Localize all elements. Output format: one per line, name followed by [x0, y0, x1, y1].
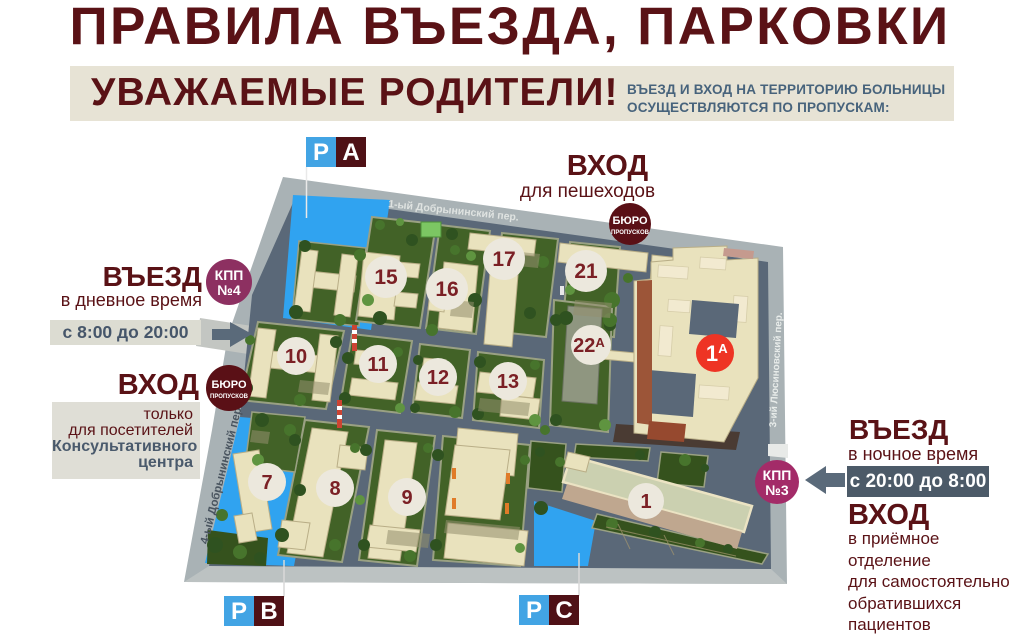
- svg-text:16: 16: [435, 278, 458, 301]
- svg-text:13: 13: [497, 371, 519, 393]
- svg-text:КПП: КПП: [215, 267, 244, 283]
- svg-text:ПРОПУСКОВ: ПРОПУСКОВ: [210, 394, 249, 400]
- svg-text:1: 1: [640, 491, 651, 513]
- svg-text:10: 10: [285, 346, 307, 368]
- svg-text:БЮРО: БЮРО: [613, 215, 648, 227]
- svg-text:С: С: [555, 597, 572, 624]
- svg-text:P: P: [526, 597, 542, 624]
- svg-text:А: А: [718, 341, 728, 356]
- svg-text:12: 12: [427, 367, 449, 389]
- svg-text:P: P: [313, 139, 329, 166]
- svg-text:В: В: [260, 598, 277, 625]
- svg-text:7: 7: [261, 472, 272, 494]
- svg-text:17: 17: [492, 248, 515, 271]
- svg-text:№3: №3: [765, 482, 789, 498]
- svg-text:8: 8: [329, 478, 340, 500]
- svg-text:БЮРО: БЮРО: [212, 379, 247, 391]
- svg-text:11: 11: [367, 354, 388, 376]
- svg-text:1: 1: [706, 341, 718, 366]
- svg-text:15: 15: [374, 266, 398, 289]
- svg-text:№4: №4: [217, 282, 241, 298]
- svg-text:9: 9: [401, 487, 412, 509]
- svg-text:КПП: КПП: [763, 467, 792, 483]
- svg-text:21: 21: [574, 260, 598, 283]
- svg-text:А: А: [342, 139, 359, 166]
- svg-text:P: P: [231, 598, 247, 625]
- svg-text:ПРОПУСКОВ: ПРОПУСКОВ: [611, 230, 650, 236]
